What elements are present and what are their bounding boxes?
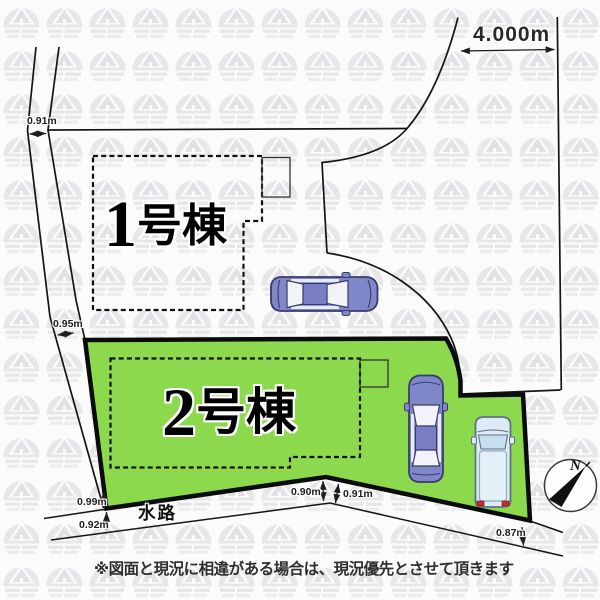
lot2-number: 2 [162, 378, 196, 446]
lot1-suffix: 号棟 [137, 203, 227, 248]
lot2-suffix: 号棟 [196, 387, 296, 437]
measurement-label-090m: 0.90m [291, 487, 321, 498]
measurement-label-099m: 0.99m [77, 497, 107, 508]
lot1-label: 1号棟 [104, 192, 227, 258]
van-car-icon [472, 417, 515, 507]
measurement-label-092m: 0.92m [79, 520, 109, 531]
measurement-label-087m: 0.87m [496, 528, 526, 539]
arrow-091m-top [30, 134, 47, 135]
measurement-label-091m-bottom: 0.91m [343, 489, 373, 500]
lot1-number: 1 [104, 192, 137, 258]
arrow-090m [323, 481, 324, 501]
road-width-label: 4.000m [473, 24, 550, 45]
disclaimer-text: ※図面と現況に相違がある場合は、現況優先とさせて頂きます [94, 561, 514, 580]
site-plan-drawing [0, 0, 600, 600]
site-plan-image: 4.000m 0.91m 0.95m 0.99m 0.92m 0.90m 0.9… [0, 0, 600, 600]
measurement-label-095m: 0.95m [53, 319, 83, 330]
sedan-car-icon-road [271, 273, 378, 316]
sedan-car-icon-lot2 [405, 376, 448, 483]
waterway-label: 水路 [138, 505, 177, 523]
compass-north-label: N [570, 459, 581, 474]
measurement-label-091m-top: 0.91m [27, 116, 57, 127]
lot2-label: 2号棟 [162, 378, 296, 446]
